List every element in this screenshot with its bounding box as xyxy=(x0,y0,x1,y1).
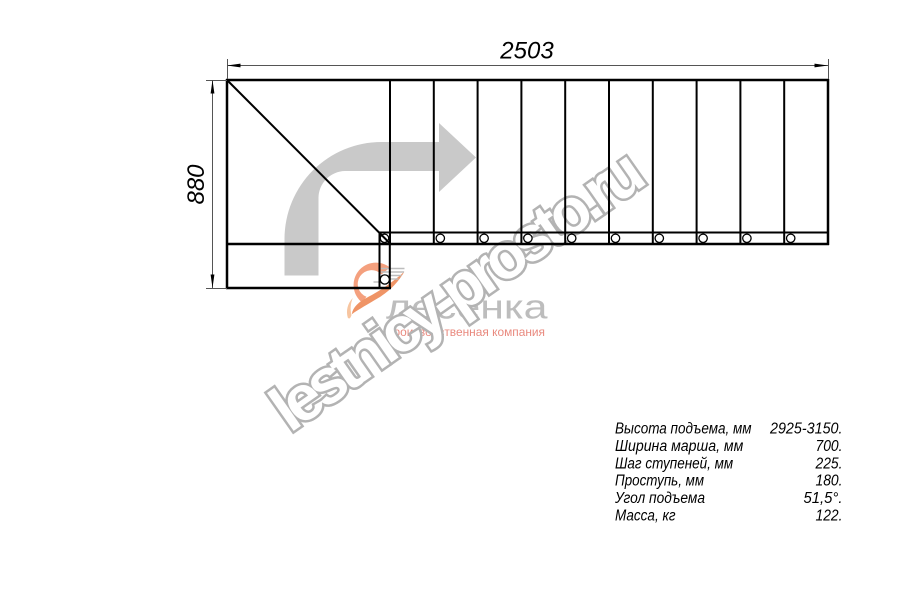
svg-text:Угол подъема: Угол подъема xyxy=(614,490,705,507)
svg-text:700.: 700. xyxy=(816,438,843,455)
svg-text:Масса, кг: Масса, кг xyxy=(615,508,676,525)
svg-text:51,5°.: 51,5°. xyxy=(804,490,843,507)
svg-text:Ширина марша, мм: Ширина марша, мм xyxy=(615,438,744,455)
svg-text:880: 880 xyxy=(183,164,210,205)
svg-text:225.: 225. xyxy=(815,455,843,472)
svg-text:Шаг ступеней, мм: Шаг ступеней, мм xyxy=(615,455,734,472)
svg-text:2925-3150.: 2925-3150. xyxy=(769,421,842,438)
svg-text:Проступь, мм: Проступь, мм xyxy=(615,473,704,490)
svg-text:122.: 122. xyxy=(816,508,843,525)
svg-text:2503: 2503 xyxy=(499,38,554,65)
svg-text:Высота подъема, мм: Высота подъема, мм xyxy=(615,421,752,438)
svg-text:180.: 180. xyxy=(816,473,843,490)
